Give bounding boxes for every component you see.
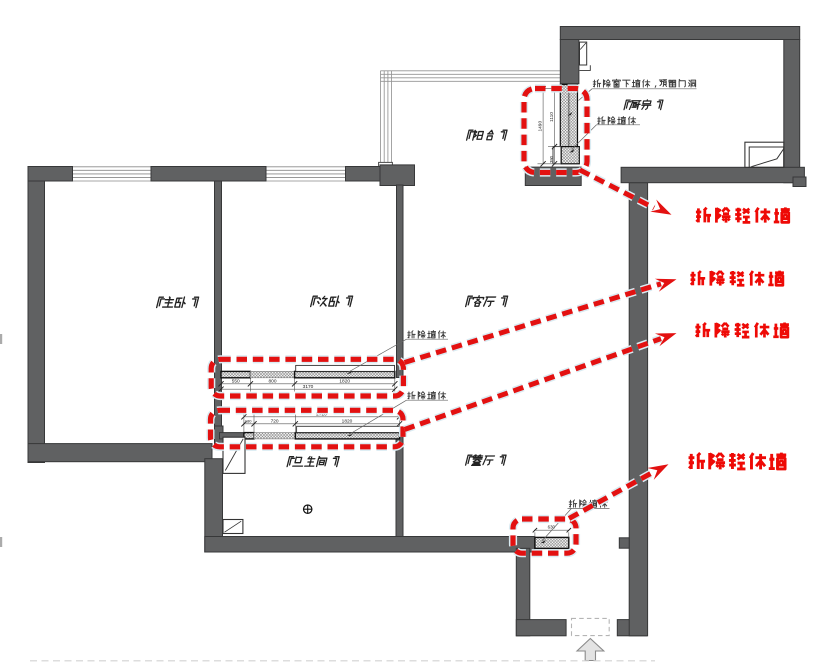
svg-text:180: 180: [245, 419, 252, 424]
svg-text:1490: 1490: [538, 121, 544, 132]
svg-text:550: 550: [232, 379, 240, 385]
svg-text:720: 720: [271, 419, 279, 425]
svg-text:800: 800: [268, 379, 276, 385]
svg-text:3170: 3170: [303, 384, 314, 390]
svg-text:1820: 1820: [342, 419, 353, 425]
svg-text:1110: 1110: [549, 112, 555, 122]
svg-text:390: 390: [549, 155, 554, 163]
svg-text:1820: 1820: [339, 379, 350, 385]
